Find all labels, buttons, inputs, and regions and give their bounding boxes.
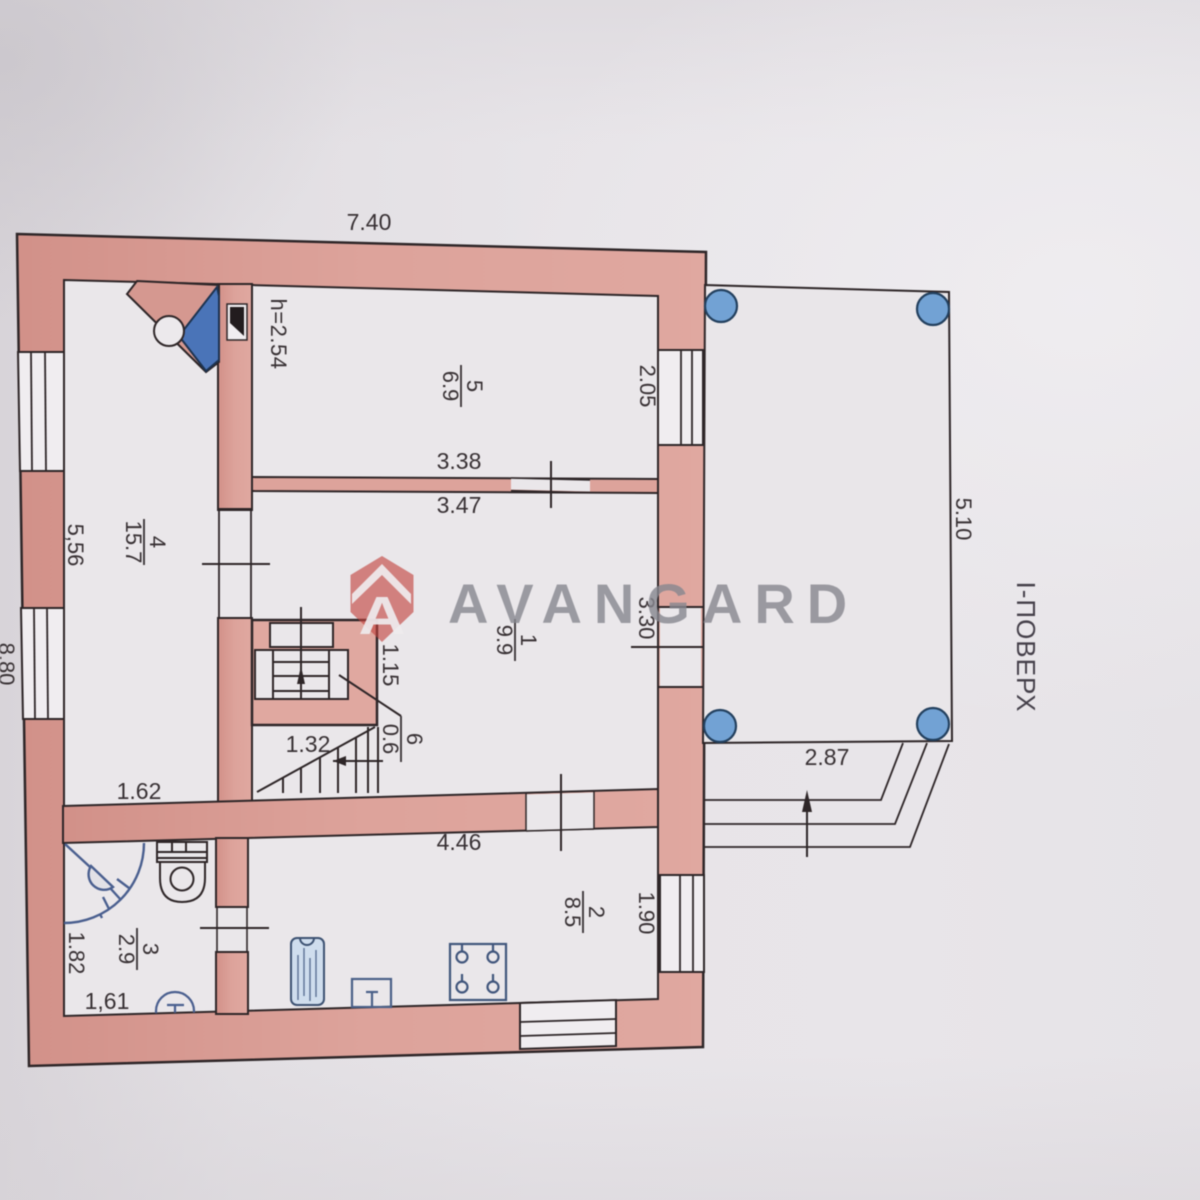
svg-text:1: 1	[516, 634, 541, 646]
svg-text:15.7: 15.7	[121, 521, 146, 564]
svg-text:1.62: 1.62	[117, 778, 162, 804]
svg-text:2.87: 2.87	[805, 744, 850, 770]
svg-text:h=2.54: h=2.54	[266, 299, 291, 370]
svg-text:AVANGARD: AVANGARD	[448, 572, 859, 635]
svg-text:7.40: 7.40	[347, 209, 392, 235]
svg-text:8,80: 8,80	[0, 643, 19, 686]
svg-text:2.9: 2.9	[114, 934, 139, 965]
svg-text:0.6: 0.6	[378, 724, 403, 755]
svg-text:A: A	[359, 586, 406, 646]
svg-text:5: 5	[462, 380, 487, 392]
svg-text:6: 6	[402, 733, 427, 745]
svg-text:3.38: 3.38	[437, 448, 482, 474]
svg-text:3: 3	[138, 943, 163, 955]
svg-text:1,61: 1,61	[85, 988, 130, 1014]
svg-text:4.46: 4.46	[437, 829, 482, 855]
svg-text:3.47: 3.47	[437, 492, 482, 518]
svg-text:8.5: 8.5	[560, 897, 585, 928]
svg-text:1.82: 1.82	[64, 932, 89, 975]
svg-text:1.32: 1.32	[286, 731, 331, 757]
svg-text:6.9: 6.9	[438, 371, 463, 402]
svg-text:І-ПОВЕРХ: І-ПОВЕРХ	[1011, 582, 1041, 713]
svg-text:5,56: 5,56	[63, 524, 88, 567]
svg-text:5.10: 5.10	[951, 498, 976, 541]
svg-text:4: 4	[145, 536, 170, 548]
svg-text:2: 2	[584, 906, 609, 918]
svg-text:1.90: 1.90	[634, 892, 659, 935]
svg-text:2.05: 2.05	[635, 365, 660, 408]
svg-text:1.15: 1.15	[378, 644, 403, 687]
